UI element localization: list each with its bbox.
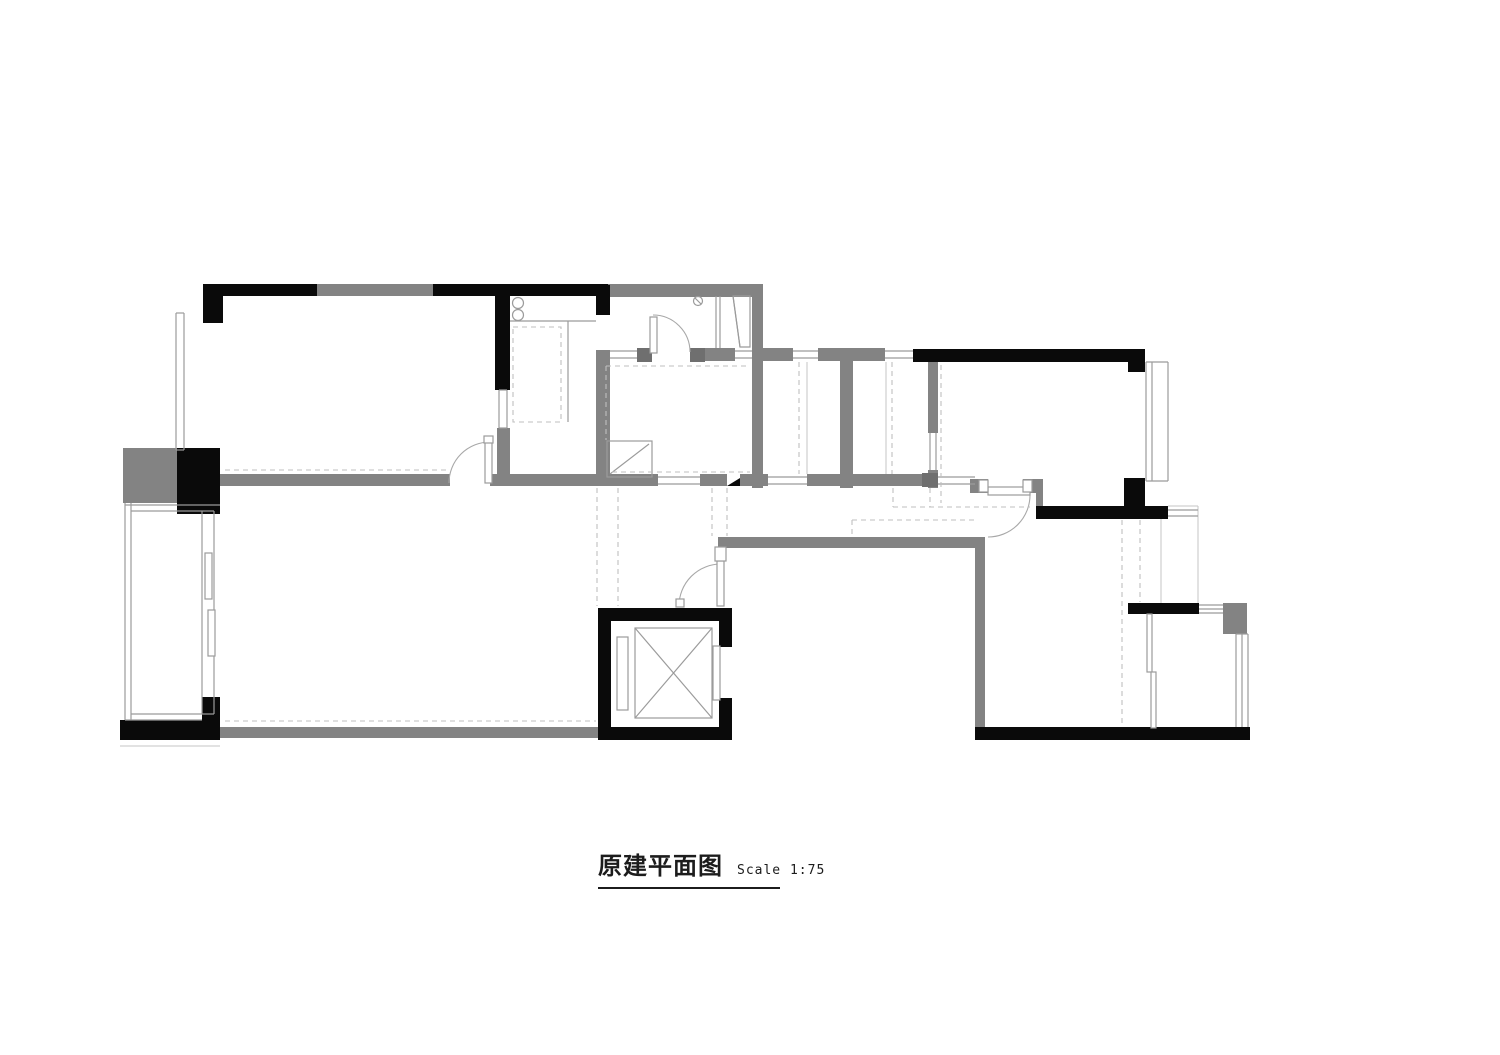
cased-opening-storage: [658, 477, 700, 484]
caption: 原建平面图Scale 1:75: [598, 846, 780, 889]
black-walls: [120, 284, 1250, 740]
stove-burner-icon: [513, 298, 524, 309]
window-left-bedroom: [176, 313, 184, 450]
window-balcony-top: [1199, 605, 1223, 613]
window-hallway: [938, 477, 975, 484]
elevator-door: [713, 646, 720, 700]
window-right-bedroom: [1146, 362, 1168, 481]
door-bathroom: [650, 315, 690, 353]
stove-burner-icon: [513, 310, 524, 321]
section-marker-triangle: [727, 478, 740, 486]
counter-dashed-outline: [513, 327, 561, 422]
bathroom-fixtures: [694, 296, 751, 348]
elevator-shaft: [598, 608, 732, 740]
floor-plan-drawing: [0, 0, 1500, 1055]
floor-plan-page: 原建平面图Scale 1:75: [0, 0, 1500, 1055]
scale-label: Scale 1:75: [737, 863, 825, 878]
windows: [120, 313, 1248, 746]
window-balcony-right: [1236, 634, 1248, 727]
window-shaft-right: [930, 433, 936, 470]
flue-platform: [1161, 506, 1198, 603]
door-right-bedroom: [979, 480, 1032, 537]
kitchen-fixtures: [510, 298, 596, 423]
door-entry: [676, 547, 726, 607]
window-kitchen-wall: [499, 390, 507, 428]
dashed-guides: [225, 362, 1140, 726]
door-top-left-room: [449, 436, 493, 483]
plan-title: 原建平面图: [598, 854, 723, 880]
window-shaft-bottom: [768, 477, 807, 484]
shower-panel: [733, 296, 750, 347]
elevator-counterweight: [617, 637, 628, 710]
sliding-door-balcony: [1147, 614, 1156, 728]
